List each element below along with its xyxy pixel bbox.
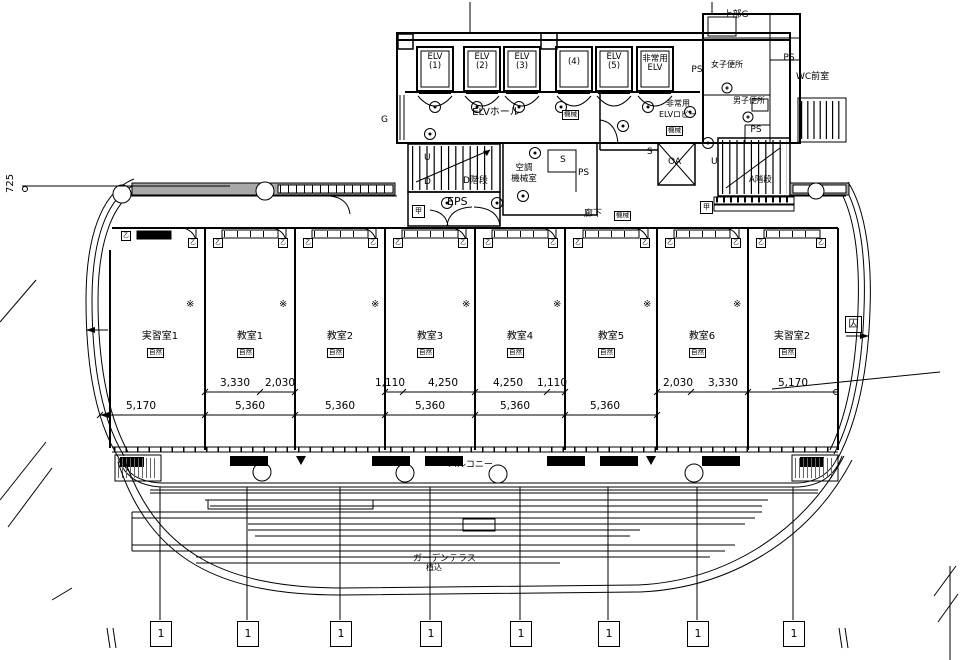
fire-door-otsu-marker: 乙 (368, 238, 378, 248)
outer-walls (86, 179, 870, 460)
smoke-vent-mark: ※ (733, 300, 741, 311)
badge-room-natural: 自然 (689, 348, 706, 358)
fire-door-otsu-marker: 乙 (548, 238, 558, 248)
room-label-jisshu2: 実習室2 (752, 332, 832, 343)
fire-door-otsu-marker: 乙 (665, 238, 675, 248)
fire-door-otsu-marker: 乙 (731, 238, 741, 248)
fire-door-otsu-marker: 乙 (121, 231, 131, 241)
smoke-vent-mark: ※ (186, 300, 194, 311)
badge-room-natural: 自然 (507, 348, 524, 358)
label-g-left: G (381, 116, 388, 126)
room-label-kyoshitsu4: 教室4 (480, 332, 560, 343)
dim-upper: 2,030 (255, 378, 305, 389)
dim-left-725: 725 (6, 174, 17, 193)
dim-lower: 5,360 (225, 401, 275, 412)
label-wc-anteroom: WC前室 (796, 73, 829, 83)
badge-corridor-mechanical: 機械 (614, 211, 631, 221)
label-ac-room-2: 機械室 (503, 175, 545, 184)
room-label-kyoshitsu5: 教室5 (571, 332, 651, 343)
dim-lower: 5,360 (315, 401, 365, 412)
dim-upper: 3,330 (210, 378, 260, 389)
elevator-4-label: (4) (552, 58, 596, 67)
fire-door-otsu-marker: 乙 (213, 238, 223, 248)
grid-marker: 1 (598, 621, 620, 647)
label-stair-d-up: U (424, 154, 431, 164)
label-ac-room-1: 空調 (507, 164, 541, 173)
label-emergency-lobby-1: 非常用 (656, 100, 700, 109)
smoke-vent-mark: ※ (553, 300, 561, 311)
fire-door-otsu-marker: 乙 (640, 238, 650, 248)
elevator-2-label: ELV(2) (460, 53, 504, 72)
fire-door-ko-marker: 甲 (412, 205, 425, 218)
label-eps: EPS (447, 196, 468, 208)
fire-door-otsu-marker: 乙 (393, 238, 403, 248)
dim-upper: 2,030 (653, 378, 703, 389)
terrace (118, 456, 852, 595)
fire-door-otsu-marker: 乙 (303, 238, 313, 248)
label-garden-terrace: ガーデンテラス (413, 555, 476, 565)
label-stair-a: A階段 (749, 176, 772, 185)
fire-door-otsu-marker: 乙 (816, 238, 826, 248)
elevator-5-label: ELV(5) (592, 53, 636, 72)
label-stair-d: D階段 (463, 177, 488, 187)
badge-room-natural: 自然 (417, 348, 434, 358)
grid-marker: 1 (237, 621, 259, 647)
smoke-vent-mark: ※ (643, 300, 651, 311)
label-emergency-lobby-2: ELVロビー (650, 111, 706, 120)
label-corridor: 廊下 (584, 210, 602, 220)
badge-elv-hall-mechanical: 機械 (562, 110, 579, 120)
dim-upper: 1,110 (365, 378, 415, 389)
label-elv-hall: ELVホール (453, 108, 539, 119)
fire-door-otsu-marker: 乙 (458, 238, 468, 248)
label-s-room: S (560, 156, 566, 166)
label-stair-a-up: U (711, 158, 718, 168)
dim-upper: 4,250 (418, 378, 468, 389)
label-ps-ac: PS (578, 169, 589, 179)
fire-door-otsu-marker: 乙 (756, 238, 766, 248)
dim-upper: 3,330 (698, 378, 748, 389)
room-label-kyoshitsu2: 教室2 (300, 332, 380, 343)
dim-lower: 5,360 (405, 401, 455, 412)
badge-room-natural: 自然 (779, 348, 796, 358)
label-ps-core: PS (683, 66, 711, 76)
label-balcony: バルコニー (448, 461, 493, 471)
dim-lower: 5,360 (490, 401, 540, 412)
fire-door-otsu-marker: 乙 (278, 238, 288, 248)
badge-room-natural: 自然 (147, 348, 164, 358)
grid-marker: 1 (330, 621, 352, 647)
fire-door-otsu-marker: 乙 (188, 238, 198, 248)
dim-upper: 4,250 (483, 378, 533, 389)
label-oa-shaft: OA (668, 158, 681, 168)
label-ps-mid: PS (742, 126, 770, 136)
label-stair-d-down: D (424, 178, 431, 188)
room-label-kyoshitsu6: 教室6 (662, 332, 742, 343)
fire-door-otsu-marker: 乙 (483, 238, 493, 248)
label-men-toilet: 男子便所 (722, 97, 776, 106)
badge-room-natural: 自然 (237, 348, 254, 358)
fire-door-otsu-marker: 乙 (573, 238, 583, 248)
elevator-1-label: ELV(1) (413, 53, 457, 72)
label-upper-g: 上部G (708, 11, 764, 21)
grid-marker: 1 (420, 621, 442, 647)
badge-room-natural: 自然 (598, 348, 615, 358)
label-planting: 植込 (426, 564, 442, 573)
smoke-vent-mark: ※ (279, 300, 287, 311)
badge-lobby-mechanical: 機械 (666, 126, 683, 136)
smoke-vent-mark: ※ (371, 300, 379, 311)
badge-room-natural: 自然 (327, 348, 344, 358)
exit-symbol: 囚 (845, 316, 862, 333)
emergency-elevator-label: 非常用ELV (633, 55, 677, 74)
room-label-kyoshitsu3: 教室3 (390, 332, 470, 343)
dim-upper: 1,110 (527, 378, 577, 389)
fire-door-ko-marker: 甲 (700, 201, 713, 214)
dim-lower: 5,170 (116, 401, 166, 412)
floor-plan: 上部G PS WC前室 女子便所 男子便所 PS ELV(1) ELV(2) E… (0, 0, 960, 660)
grid-marker: 1 (150, 621, 172, 647)
plan-linework (0, 0, 960, 660)
grid-marker: 1 (687, 621, 709, 647)
grid-marker: 1 (783, 621, 805, 647)
label-ps-top: PS (775, 54, 803, 64)
dim-upper: 5,170 (768, 378, 818, 389)
room-label-kyoshitsu1: 教室1 (210, 332, 290, 343)
elevator-3-label: ELV(3) (500, 53, 544, 72)
smoke-vent-mark: ※ (462, 300, 470, 311)
grid-marker: 1 (510, 621, 532, 647)
label-s-oa: S (647, 148, 653, 158)
room-label-jisshu1: 実習室1 (120, 332, 200, 343)
dim-lower: 5,360 (580, 401, 630, 412)
